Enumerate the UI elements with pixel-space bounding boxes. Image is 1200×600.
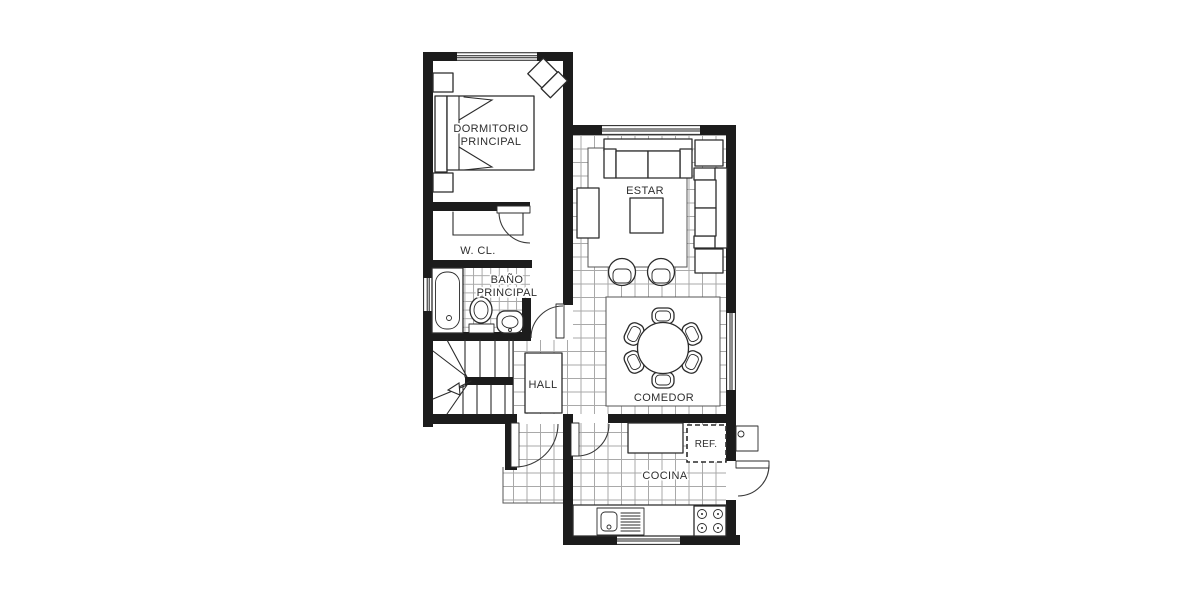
kitchen-exterior-door xyxy=(736,461,769,496)
end-table-top xyxy=(695,140,723,166)
dining-window xyxy=(726,313,736,390)
armchair-left xyxy=(609,259,636,286)
exterior-unit xyxy=(736,426,758,451)
coffee-table xyxy=(630,198,663,233)
living-window xyxy=(602,125,700,135)
label-bano-line2: PRINCIPAL xyxy=(477,287,538,299)
label-cocina: COCINA xyxy=(642,470,687,482)
bathroom-sink xyxy=(497,311,523,333)
kitchen-counter-top xyxy=(628,423,683,453)
toilet xyxy=(469,297,494,333)
sofa-right xyxy=(694,168,727,248)
suite-door xyxy=(531,304,564,338)
nightstand-bottom xyxy=(433,173,453,192)
stove xyxy=(694,506,726,536)
armchair-right xyxy=(648,259,675,286)
floor-plan-canvas: DORMITORIO PRINCIPAL W. CL. BAÑO PRINCIP… xyxy=(0,0,1200,600)
label-dormitorio-line2: PRINCIPAL xyxy=(461,136,522,148)
kitchen-sink xyxy=(597,508,644,535)
dining-chair xyxy=(652,308,674,324)
wall-bedroom-right xyxy=(563,52,573,305)
wall-bath-top xyxy=(423,260,532,268)
wall-left xyxy=(423,52,433,427)
label-estar: ESTAR xyxy=(626,185,664,197)
end-table-bottom xyxy=(695,249,723,273)
corner-tv xyxy=(527,57,567,97)
nightstand-top xyxy=(433,73,453,92)
dining-table xyxy=(638,323,689,374)
sofa-top xyxy=(604,139,692,178)
floor-plan: DORMITORIO PRINCIPAL W. CL. BAÑO PRINCIP… xyxy=(0,0,1200,600)
kitchen-door-opening xyxy=(726,461,736,500)
dining-chair xyxy=(652,372,674,388)
label-hall: HALL xyxy=(528,379,557,391)
bedroom-window xyxy=(457,52,537,61)
bed-headboard xyxy=(435,96,447,172)
floor-porch xyxy=(503,467,565,503)
wardrobe-outline xyxy=(453,212,523,235)
stairs-divider xyxy=(465,377,513,385)
staircase xyxy=(433,340,513,414)
label-comedor: COMEDOR xyxy=(634,392,694,404)
bathtub xyxy=(432,268,463,333)
wall-dining-kitchen xyxy=(608,414,736,423)
label-ref: REF. xyxy=(695,439,717,450)
sideboard xyxy=(577,188,599,238)
wall-stairs-bottom xyxy=(423,414,517,424)
label-dormitorio-line1: DORMITORIO xyxy=(453,123,528,135)
floor-entry xyxy=(517,424,563,467)
stairs-direction-arrow xyxy=(448,383,460,395)
walkin-closet xyxy=(453,212,523,235)
label-bano-line1: BAÑO xyxy=(491,273,524,286)
label-wcl: W. CL. xyxy=(460,245,495,257)
closet-door xyxy=(497,206,530,243)
